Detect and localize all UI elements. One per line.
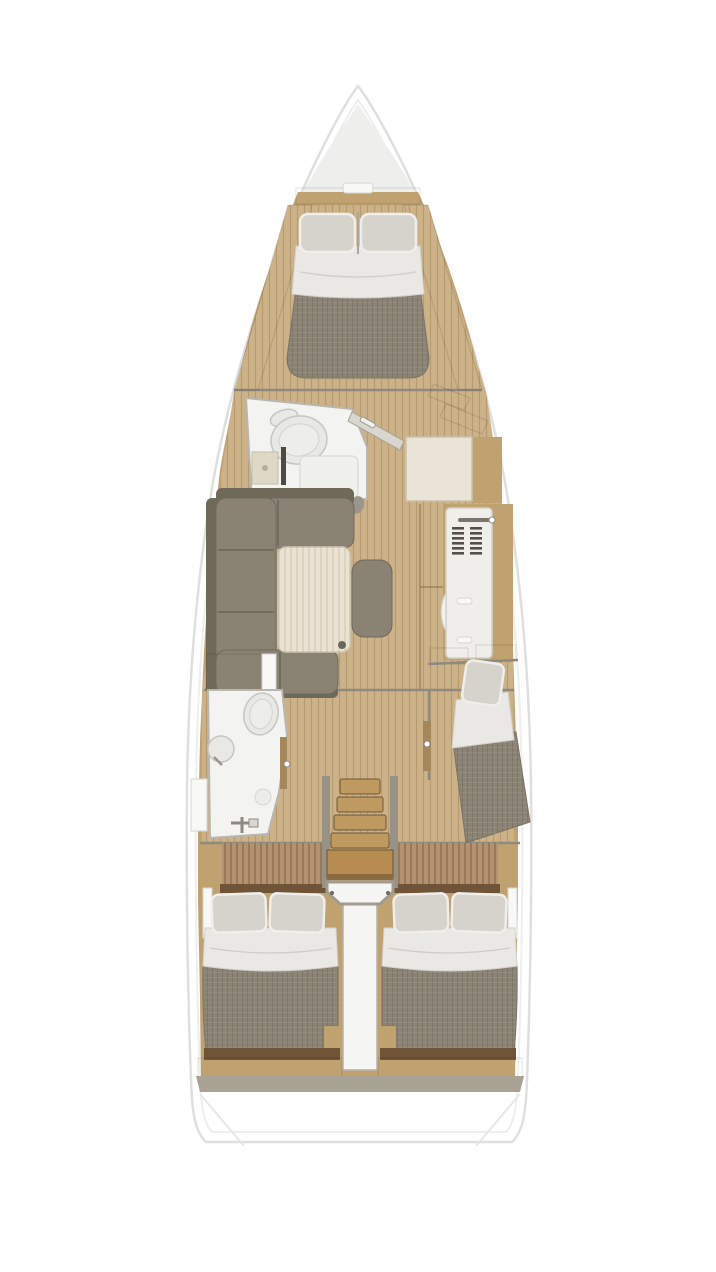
aft-head-sink xyxy=(208,736,234,762)
chart-table-side xyxy=(470,437,502,503)
port-pillow-inner xyxy=(269,893,324,933)
galley-latch-1 xyxy=(457,598,472,604)
galley-latch-2 xyxy=(457,637,472,643)
stair-tread-3 xyxy=(334,815,386,830)
head-panel-port-planks xyxy=(222,843,328,888)
settee-bottom-bench xyxy=(216,650,338,694)
bow-hatch xyxy=(343,183,373,193)
galley-unit xyxy=(446,508,492,658)
port-pillow-outer xyxy=(211,893,266,933)
table-fitting xyxy=(338,641,346,649)
stern-band xyxy=(196,1076,524,1092)
stair-tread-4 xyxy=(331,833,389,848)
stbd-pillow-inner xyxy=(393,893,448,933)
v-berth-bed-foot xyxy=(287,288,429,378)
yacht-floorplan xyxy=(0,0,716,1272)
floorplan-drawing xyxy=(0,0,716,1272)
port-bed-blanket xyxy=(203,964,338,1054)
head-trim-port xyxy=(220,884,330,893)
aft-head-drain xyxy=(255,789,271,805)
aft-cabin-port xyxy=(198,888,342,1082)
forward-head-sink-drain xyxy=(262,465,268,471)
landing-screw-left xyxy=(330,891,334,895)
v-berth-pillow-right xyxy=(361,214,416,252)
mid-berth-pillow xyxy=(461,660,504,707)
stair-tread-2 xyxy=(337,797,383,812)
aft-head-door-handle xyxy=(284,761,290,767)
chart-table xyxy=(406,437,472,501)
aft-head-cabinet-gap xyxy=(262,654,276,690)
stair-bottom-step xyxy=(327,850,393,878)
stair-bottom-edge xyxy=(327,874,393,880)
hull-locker xyxy=(191,779,207,831)
companionway-landing xyxy=(327,882,393,904)
center-column xyxy=(343,898,377,1070)
stbd-pillow-outer xyxy=(451,893,506,933)
head-panel-starboard-planks xyxy=(392,843,498,888)
v-berth-pillow-left xyxy=(300,214,355,252)
stbd-bed-blanket xyxy=(382,964,517,1054)
stair-tread-1 xyxy=(340,779,380,794)
galley-handle-knob xyxy=(489,517,495,523)
forward-head-door-slot xyxy=(281,447,286,485)
saloon-table-grain xyxy=(278,547,350,652)
bow-tip-liner xyxy=(303,104,415,192)
centerline-bench xyxy=(352,560,392,637)
galley-handle-bar xyxy=(458,518,492,522)
mid-cabin-door-handle xyxy=(424,741,430,747)
aft-head-mixer-handle xyxy=(249,819,258,827)
head-trim-starboard xyxy=(390,884,500,893)
landing-screw-right xyxy=(386,891,390,895)
